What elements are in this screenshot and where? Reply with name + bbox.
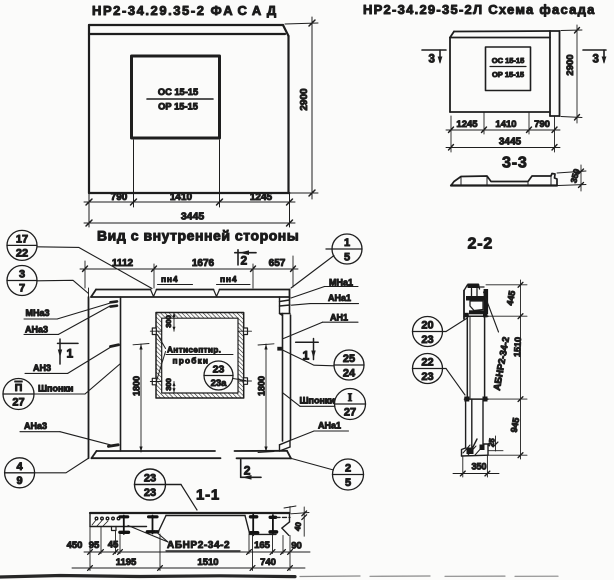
- svg-text:2: 2: [345, 463, 351, 475]
- svg-text:22: 22: [421, 357, 433, 369]
- svg-text:25: 25: [343, 353, 355, 365]
- svg-text:790: 790: [534, 119, 550, 130]
- svg-text:1: 1: [344, 237, 350, 249]
- svg-text:25: 25: [486, 438, 496, 448]
- svg-text:АН3: АН3: [33, 363, 51, 373]
- svg-text:165: 165: [254, 540, 271, 551]
- svg-text:3: 3: [19, 269, 25, 281]
- svg-text:2: 2: [244, 464, 251, 478]
- svg-text:1800: 1800: [132, 376, 142, 396]
- svg-text:НР2-34.29-35-2Л Схема фасада: НР2-34.29-35-2Л Схема фасада: [363, 2, 596, 17]
- svg-text:5: 5: [344, 252, 350, 264]
- svg-text:1245: 1245: [456, 119, 478, 130]
- svg-text:23: 23: [421, 371, 433, 383]
- svg-text:1800: 1800: [257, 376, 267, 396]
- svg-text:Шпонки: Шпонки: [38, 384, 73, 394]
- svg-text:90: 90: [291, 541, 302, 552]
- svg-text:I: I: [348, 392, 353, 404]
- svg-text:П: П: [15, 382, 23, 394]
- svg-text:АНа3: АНа3: [24, 421, 47, 431]
- svg-text:МНа3: МНа3: [26, 308, 50, 318]
- svg-text:1195: 1195: [116, 557, 137, 568]
- svg-text:350: 350: [471, 462, 486, 472]
- svg-text:1410: 1410: [495, 119, 516, 130]
- svg-text:23: 23: [144, 487, 156, 499]
- svg-text:НР2-34.29.35-2 ФАСАД: НР2-34.29.35-2 ФАСАД: [92, 3, 281, 18]
- svg-text:2-2: 2-2: [468, 236, 494, 253]
- svg-text:23: 23: [213, 364, 225, 376]
- svg-text:350: 350: [568, 167, 581, 184]
- svg-text:1-1: 1-1: [196, 487, 220, 504]
- svg-text:23а: 23а: [211, 378, 228, 389]
- svg-text:АБНР2-34-2: АБНР2-34-2: [492, 336, 512, 391]
- svg-text:445: 445: [505, 290, 517, 307]
- svg-text:27: 27: [344, 407, 356, 419]
- svg-text:24: 24: [343, 368, 356, 380]
- svg-text:АБНР2-34-2: АБНР2-34-2: [167, 540, 230, 551]
- svg-text:Шпонки: Шпонки: [300, 396, 335, 406]
- svg-text:1510: 1510: [512, 337, 523, 358]
- svg-text:27: 27: [12, 397, 24, 409]
- svg-text:3445: 3445: [499, 137, 522, 148]
- svg-text:7: 7: [19, 283, 25, 295]
- svg-text:9: 9: [17, 475, 23, 487]
- svg-text:300: 300: [164, 378, 173, 391]
- svg-text:95: 95: [89, 540, 100, 551]
- svg-text:657: 657: [269, 258, 286, 269]
- svg-text:3: 3: [429, 54, 435, 66]
- svg-text:23: 23: [144, 473, 156, 485]
- svg-text:1510: 1510: [197, 557, 218, 568]
- svg-text:пн4: пн4: [220, 274, 237, 284]
- svg-text:300: 300: [164, 315, 173, 328]
- svg-text:1245: 1245: [250, 192, 273, 203]
- svg-text:3-3: 3-3: [502, 155, 528, 172]
- svg-text:4: 4: [17, 461, 24, 473]
- svg-text:2900: 2900: [299, 88, 310, 111]
- svg-text:1: 1: [67, 347, 74, 361]
- svg-text:1410: 1410: [170, 192, 193, 203]
- svg-text:ОС 15-15: ОС 15-15: [492, 56, 525, 65]
- svg-text:2: 2: [241, 254, 248, 268]
- svg-text:АНа1: АНа1: [318, 421, 341, 431]
- svg-text:945: 945: [509, 417, 521, 434]
- svg-text:Вид с внутренней стороны: Вид с внутренней стороны: [97, 228, 299, 244]
- svg-text:17: 17: [16, 234, 28, 246]
- svg-text:20: 20: [421, 320, 433, 332]
- svg-text:1676: 1676: [192, 258, 215, 269]
- svg-text:АН1: АН1: [330, 313, 348, 323]
- svg-text:45: 45: [108, 540, 119, 551]
- svg-text:23: 23: [421, 334, 433, 346]
- svg-text:5: 5: [345, 477, 351, 489]
- svg-text:ОР 15-15: ОР 15-15: [158, 102, 198, 112]
- svg-text:3: 3: [593, 54, 599, 66]
- svg-text:740: 740: [260, 557, 276, 568]
- svg-text:22: 22: [16, 248, 28, 260]
- svg-text:ОС 15-15: ОС 15-15: [158, 87, 198, 97]
- svg-text:450: 450: [67, 540, 83, 551]
- svg-text:2900: 2900: [565, 54, 576, 75]
- svg-text:АНа1: АНа1: [328, 293, 351, 303]
- svg-text:пн4: пн4: [161, 274, 178, 284]
- svg-text:3445: 3445: [181, 211, 205, 223]
- svg-text:Антисептир.: Антисептир.: [167, 345, 221, 355]
- svg-text:АНа3: АНа3: [25, 324, 48, 334]
- svg-text:пробки: пробки: [173, 356, 210, 366]
- svg-text:ОР 15-15: ОР 15-15: [492, 70, 524, 79]
- svg-text:790: 790: [111, 192, 128, 203]
- svg-text:40: 40: [293, 521, 304, 532]
